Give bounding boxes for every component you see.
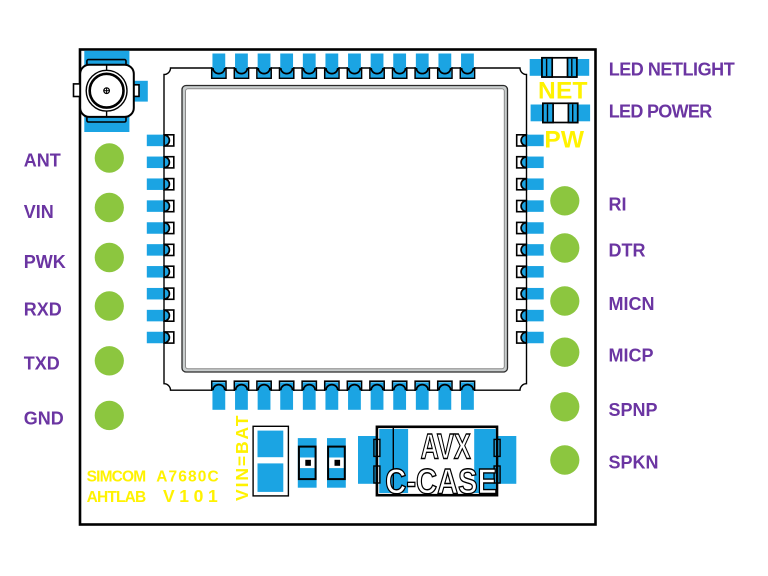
svg-text:SPNP: SPNP <box>609 400 658 420</box>
svg-text:AHTLAB: AHTLAB <box>87 489 147 506</box>
svg-text:DTR: DTR <box>609 240 646 260</box>
svg-text:VIN: VIN <box>24 202 54 222</box>
svg-text:GND: GND <box>24 408 64 428</box>
svg-text:MICN: MICN <box>609 294 655 314</box>
svg-text:SIMCOM: SIMCOM <box>87 468 147 485</box>
svg-text:LED POWER: LED POWER <box>609 102 713 122</box>
svg-text:PW: PW <box>544 127 584 154</box>
svg-text:NET: NET <box>538 78 588 105</box>
svg-text:ANT: ANT <box>24 150 61 170</box>
svg-text:AVX: AVX <box>421 427 472 466</box>
svg-text:RI: RI <box>609 195 627 215</box>
svg-text:PWK: PWK <box>24 252 66 272</box>
svg-text:RXD: RXD <box>24 300 62 320</box>
svg-text:C-CASE: C-CASE <box>385 463 497 502</box>
svg-text:LED NETLIGHT: LED NETLIGHT <box>609 60 735 80</box>
svg-text:MICP: MICP <box>609 345 654 365</box>
svg-text:A7680C: A7680C <box>156 468 219 485</box>
svg-text:TXD: TXD <box>24 353 60 373</box>
svg-text:SPKN: SPKN <box>609 452 659 472</box>
